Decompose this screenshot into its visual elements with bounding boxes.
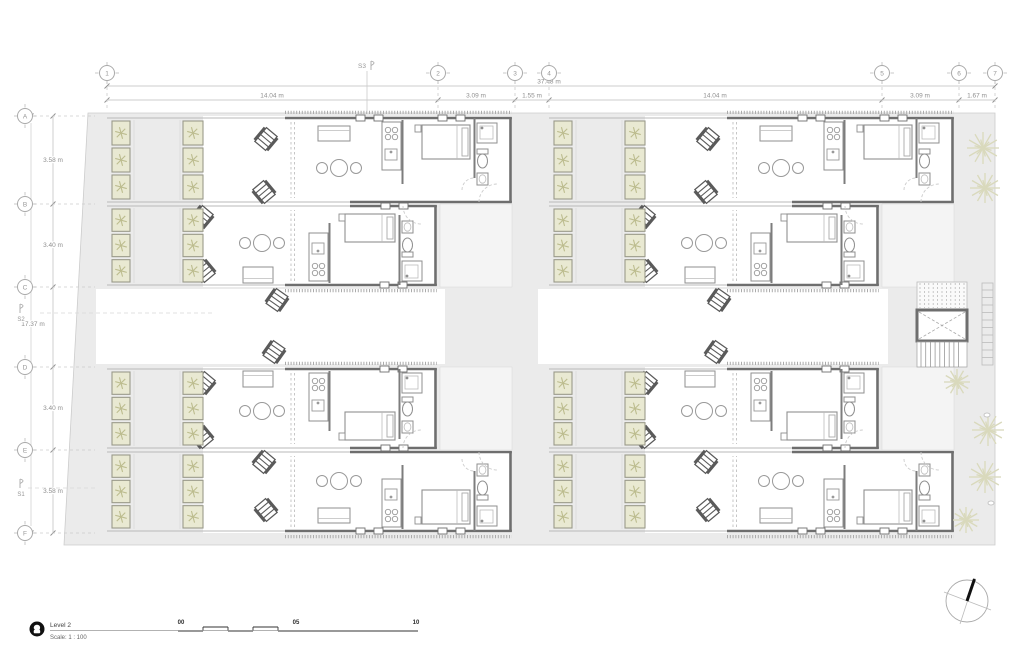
sofa-icon — [243, 371, 273, 387]
nightstand — [781, 214, 787, 221]
north-arrow-icon — [944, 578, 991, 624]
window-icon — [380, 366, 389, 372]
toilet-icon — [477, 495, 488, 500]
dimension-label: 14.04 m — [260, 93, 284, 100]
window-icon — [438, 528, 447, 534]
corridor — [440, 204, 512, 287]
nightstand — [781, 433, 787, 440]
kitchen-counter — [751, 373, 770, 421]
corridor — [882, 204, 954, 287]
toilet-icon — [477, 149, 488, 154]
section-marker-label: S2 — [17, 317, 25, 323]
window-icon — [798, 115, 807, 121]
stone-icon — [988, 501, 994, 505]
grid-bubble-label: 7 — [993, 70, 997, 77]
window-icon — [381, 445, 390, 451]
nightstand — [339, 433, 345, 440]
window-icon — [374, 115, 383, 121]
window-icon — [356, 528, 365, 534]
grid-bubble-label: A — [23, 113, 28, 120]
window-icon — [374, 528, 383, 534]
window-icon — [456, 115, 465, 121]
nightstand — [415, 517, 421, 524]
kitchen-counter — [382, 479, 401, 527]
window-icon — [456, 528, 465, 534]
level-badge: 2 — [35, 625, 40, 634]
nightstand — [857, 517, 863, 524]
dimension-label: 3.09 m — [910, 93, 930, 100]
scale-bar: 000510 — [178, 620, 420, 631]
section-marker-label: S3 — [358, 63, 366, 70]
window-icon — [822, 366, 831, 372]
grid-bubble-label: 1 — [105, 70, 109, 77]
sofa-icon — [760, 126, 792, 141]
grid-bubble-label: B — [23, 201, 27, 208]
drawing-scale: Scale: 1 : 100 — [50, 635, 87, 641]
section-flag-icon — [20, 479, 23, 488]
window-icon — [381, 203, 390, 209]
toilet-icon — [402, 252, 413, 257]
window-icon — [823, 203, 832, 209]
toilet-icon — [919, 149, 930, 154]
dimension-label: 17.37 m — [21, 321, 45, 328]
grid-bubble-label: 3 — [513, 70, 517, 77]
sofa-icon — [318, 126, 350, 141]
nightstand — [415, 125, 421, 132]
toilet-icon — [844, 397, 855, 402]
grid-bubble-label: 5 — [880, 70, 884, 77]
dimension-label: 14.04 m — [703, 93, 727, 100]
window-icon — [898, 115, 907, 121]
toilet-icon — [402, 397, 413, 402]
scale-bar-label: 00 — [178, 620, 185, 626]
section-flag-icon — [20, 304, 23, 313]
window-icon — [356, 115, 365, 121]
dimension-label: 3.09 m — [466, 93, 486, 100]
nightstand — [857, 125, 863, 132]
section-marker-label: S1 — [17, 492, 25, 498]
kitchen-counter — [309, 373, 328, 421]
sofa-icon — [243, 267, 273, 283]
floor-plan-svg: 37.48 m14.04 m3.09 m1.55 m14.04 m3.09 m1… — [0, 0, 1024, 663]
toilet-icon — [844, 252, 855, 257]
scale-bar-label: 10 — [413, 620, 420, 626]
corridor — [440, 367, 512, 450]
sofa-icon — [685, 267, 715, 283]
grid-bubble-label: 4 — [547, 70, 551, 77]
grid-bubble-label: D — [23, 364, 28, 371]
window-icon — [816, 115, 825, 121]
kitchen-counter — [824, 122, 843, 170]
window-icon — [816, 528, 825, 534]
dimension-label: 3.40 m — [43, 242, 63, 249]
kitchen-counter — [382, 122, 401, 170]
grid-bubble-label: C — [23, 284, 28, 291]
grid-bubble-label: E — [23, 447, 28, 454]
window-icon — [898, 528, 907, 534]
stone-icon — [984, 413, 990, 417]
kitchen-counter — [824, 479, 843, 527]
dimension-label: 1.67 m — [967, 93, 987, 100]
window-icon — [798, 528, 807, 534]
grid-bubble-label: 2 — [436, 70, 440, 77]
sofa-icon — [685, 371, 715, 387]
drawing-title: Level 2 — [50, 622, 71, 629]
floor-plan-sheet: 37.48 m14.04 m3.09 m1.55 m14.04 m3.09 m1… — [0, 0, 1024, 663]
window-icon — [438, 115, 447, 121]
window-icon — [880, 115, 889, 121]
dimension-label: 1.55 m — [522, 93, 542, 100]
corridor — [882, 367, 954, 450]
window-icon — [822, 282, 831, 288]
grid-bubble-label: F — [23, 530, 27, 537]
section-flag-icon — [371, 61, 374, 70]
sofa-icon — [760, 508, 792, 523]
nightstand — [339, 214, 345, 221]
grid-bubble-label: 6 — [957, 70, 961, 77]
window-icon — [823, 445, 832, 451]
window-icon — [880, 528, 889, 534]
window-icon — [380, 282, 389, 288]
dimension-label: 3.58 m — [43, 157, 63, 164]
sofa-icon — [318, 508, 350, 523]
scale-bar-label: 05 — [293, 620, 300, 626]
site-plan — [64, 113, 995, 545]
title-block: 2Level 2Scale: 1 : 100 — [30, 622, 311, 642]
kitchen-counter — [309, 233, 328, 281]
dimension-label: 3.58 m — [43, 488, 63, 495]
toilet-icon — [919, 495, 930, 500]
dimension-label: 3.40 m — [43, 405, 63, 412]
kitchen-counter — [751, 233, 770, 281]
